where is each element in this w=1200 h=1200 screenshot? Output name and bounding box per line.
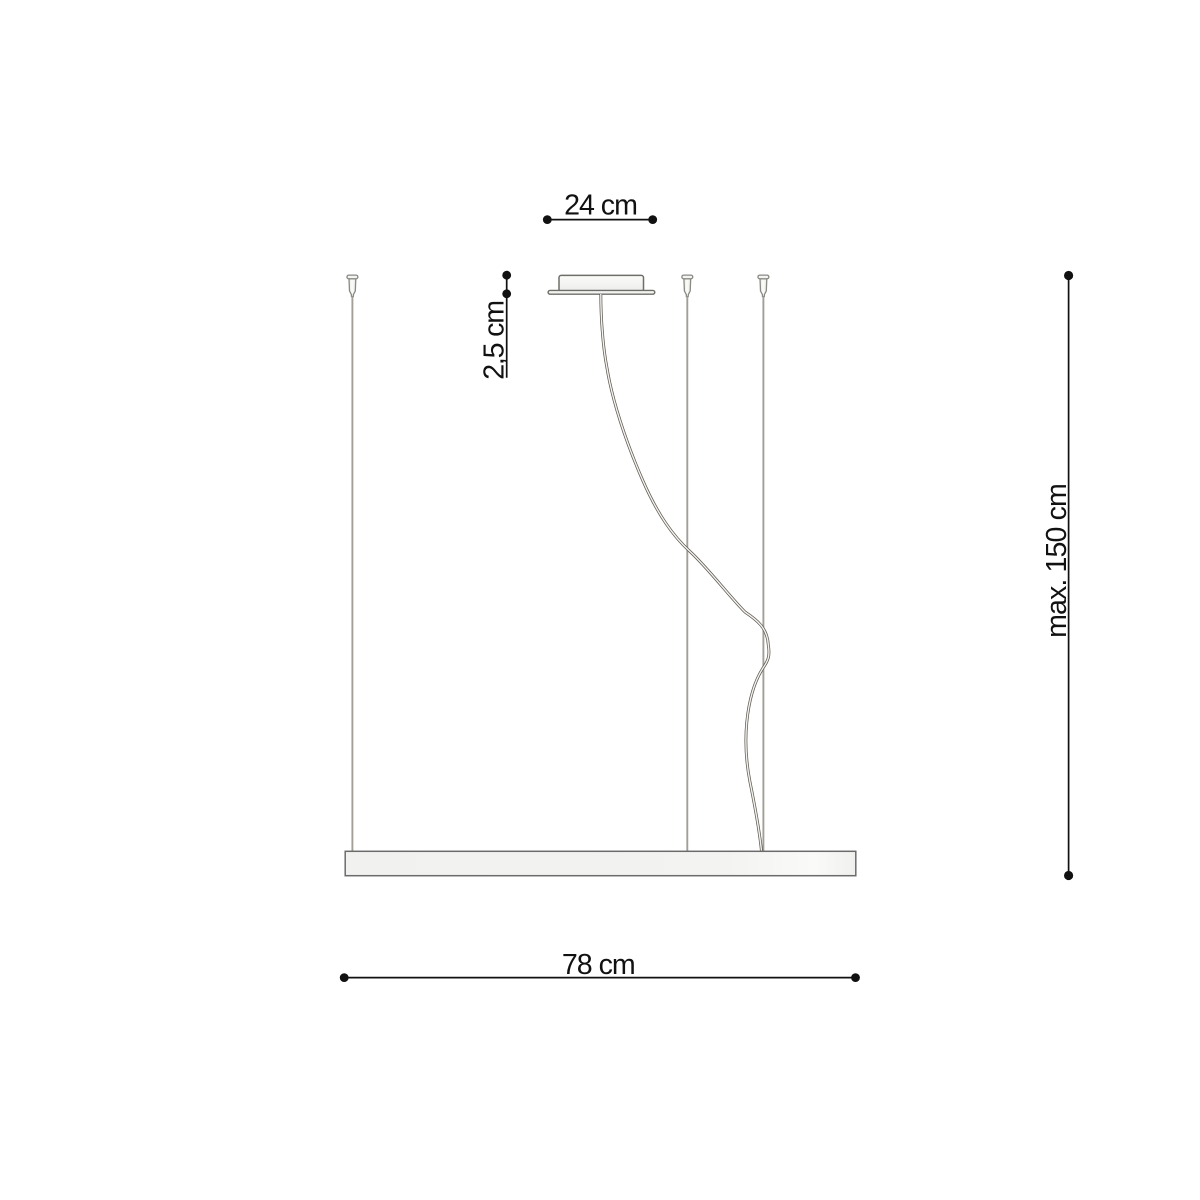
svg-text:78 cm: 78 cm [562,949,635,981]
svg-text:2,5 cm: 2,5 cm [479,301,511,380]
svg-text:24 cm: 24 cm [564,190,637,222]
